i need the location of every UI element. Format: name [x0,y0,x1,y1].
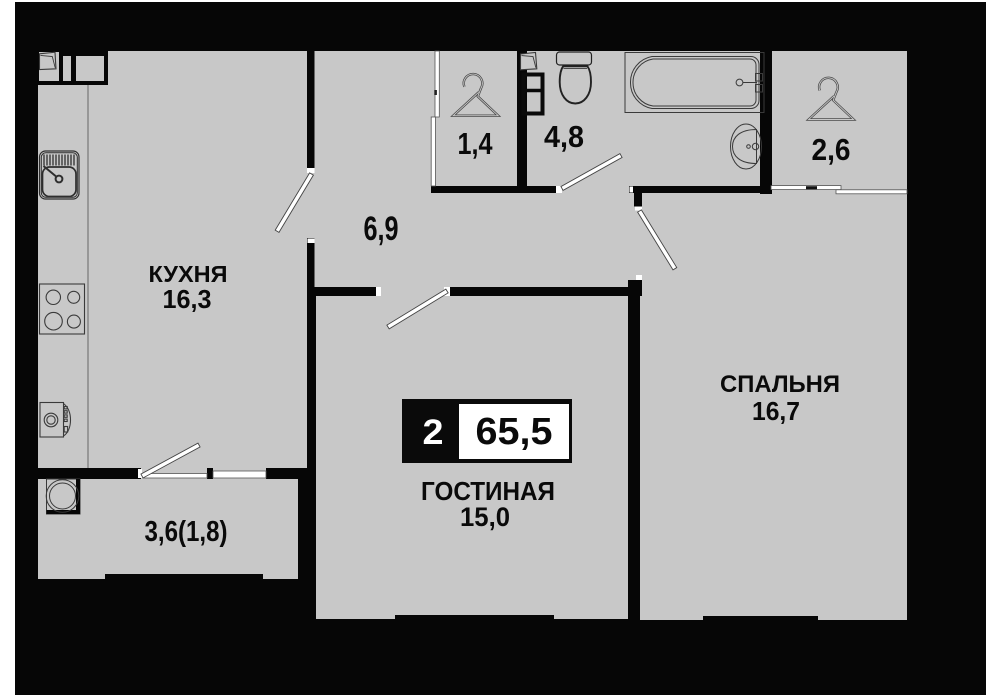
svg-text:16,7: 16,7 [752,396,800,426]
svg-text:1,4: 1,4 [458,126,494,161]
svg-text:6,9: 6,9 [364,210,399,248]
svg-text:4,8: 4,8 [544,119,584,154]
svg-text:2,6: 2,6 [812,132,851,167]
svg-text:3,6(1,8): 3,6(1,8) [145,516,228,548]
svg-text:15,0: 15,0 [460,502,510,532]
svg-text:2: 2 [423,413,444,452]
svg-text:65,5: 65,5 [476,411,553,453]
svg-text:СПАЛЬНЯ: СПАЛЬНЯ [720,371,840,398]
svg-text:16,3: 16,3 [163,284,212,314]
